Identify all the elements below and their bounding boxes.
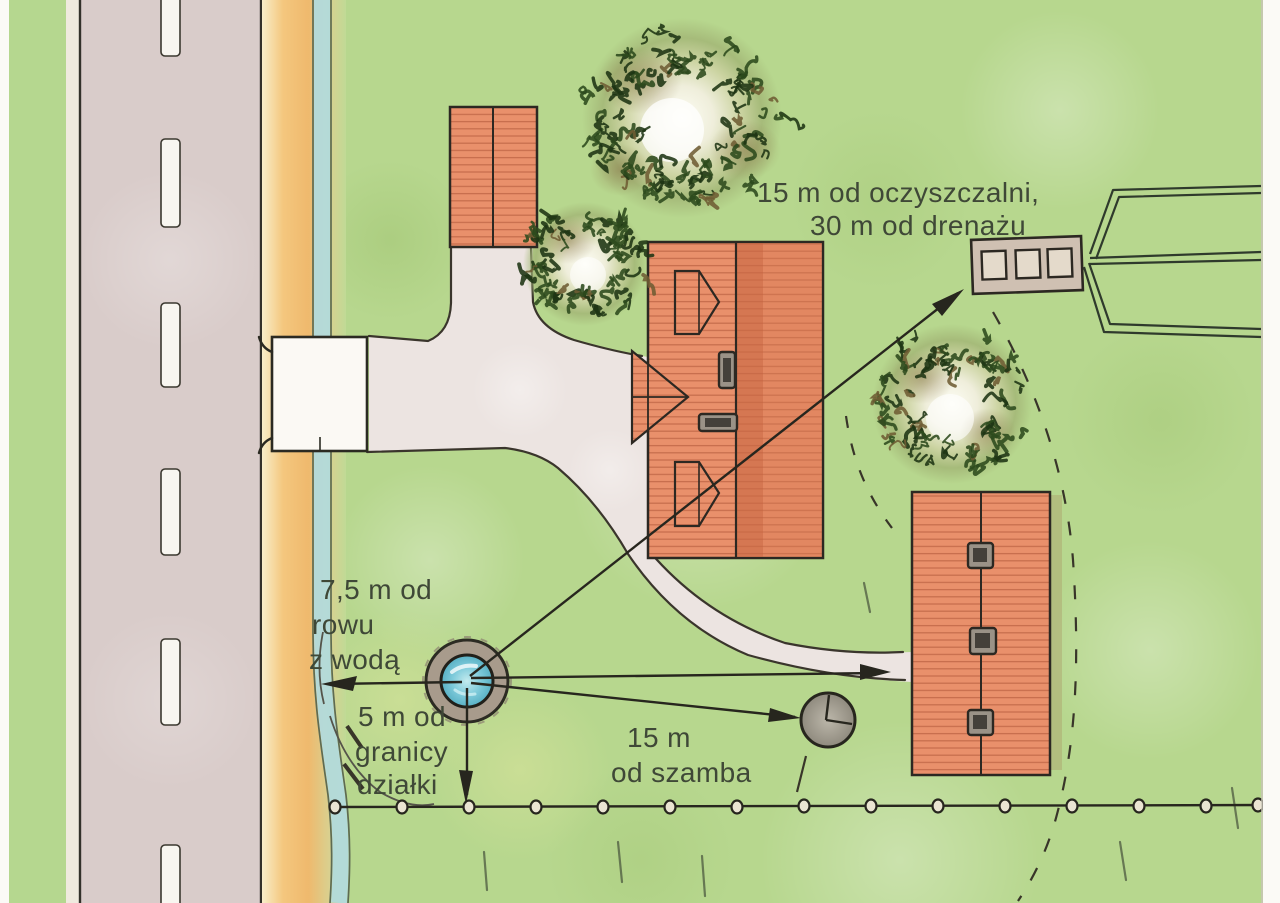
label-ditch-distance-line1: 7,5 m od [320, 576, 432, 604]
sewage-treatment-plant [971, 236, 1083, 294]
road-verge-gap [66, 0, 80, 903]
label-boundary-distance-line2: granicy [355, 738, 448, 766]
label-septic-distance-line2: od szamba [611, 759, 752, 787]
label-septic-distance-line1: 15 m [627, 724, 691, 752]
label-boundary-distance-line1: 5 m od [358, 703, 446, 731]
label-treatment-distance-line1: 15 m od oczyszczalni, [757, 179, 1039, 207]
septic-tank [801, 693, 855, 747]
label-boundary-distance-line3: działki [357, 771, 438, 799]
label-ditch-distance-line3: z wodą [309, 646, 400, 674]
garage [450, 107, 537, 247]
house [632, 242, 823, 558]
outbuilding [912, 492, 1062, 775]
label-ditch-distance-line2: rowu [312, 611, 374, 639]
site-plan-illustration: 15 m od oczyszczalni, 30 m od drenażu 7,… [0, 0, 1280, 903]
culvert-bridge [259, 337, 367, 453]
label-treatment-distance-line2: 30 m od drenażu [810, 212, 1026, 240]
